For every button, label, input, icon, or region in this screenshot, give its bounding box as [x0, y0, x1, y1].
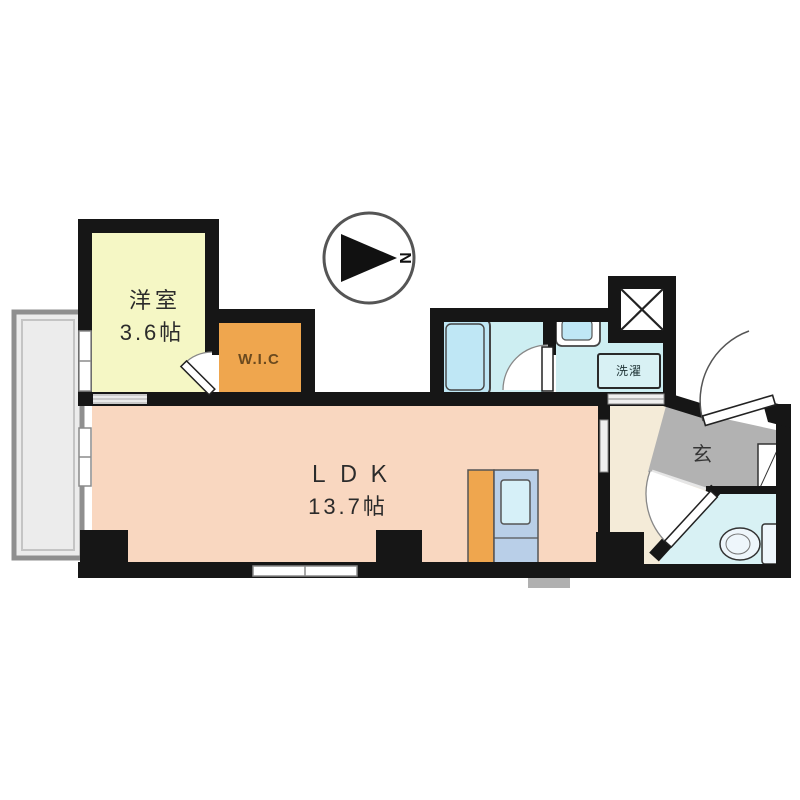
door-leaf-bath [542, 347, 553, 391]
wall-ps [608, 330, 676, 343]
wall [430, 308, 556, 322]
wall [78, 392, 674, 406]
bathtub-outer [440, 318, 490, 396]
ldk-name-label: ＬＤＫ [307, 461, 397, 487]
compass: N [324, 213, 414, 303]
toilet-fixture [720, 524, 782, 564]
floor-plan-drawing: 洗濯 [0, 0, 800, 800]
wall-corner [596, 532, 644, 578]
wall-right [776, 404, 791, 570]
wall-pillar [80, 530, 128, 578]
washbasin-bowl [562, 320, 592, 340]
wall-bottom [640, 564, 791, 578]
wall [205, 309, 315, 323]
wall [205, 219, 219, 355]
bathtub [440, 318, 490, 396]
entrance-label: 玄 [692, 443, 712, 466]
ps-shaft [621, 289, 663, 330]
floor-plan-page: 洗濯 [0, 0, 800, 800]
ldk-size-label: 13.7帖 [308, 494, 388, 519]
wall [430, 308, 444, 406]
laundry-label: 洗濯 [616, 364, 642, 378]
balcony [14, 312, 82, 558]
wall-pillar [376, 530, 422, 578]
bedroom-name-label: 洋室 [129, 288, 181, 313]
laundry-space: 洗濯 [598, 354, 660, 388]
bedroom-size-label: 3.6帖 [120, 320, 185, 345]
wall [78, 219, 219, 233]
kitchen-counter [468, 470, 494, 576]
compass-north-label: N [396, 252, 413, 264]
sliding-door-ldk-hall [600, 420, 608, 472]
sliding-door-bedroom [93, 394, 147, 404]
kitchen-sink [501, 480, 530, 524]
wall [301, 309, 315, 406]
wic-label: W.I.C [238, 351, 280, 368]
balcony-floor [14, 312, 82, 558]
